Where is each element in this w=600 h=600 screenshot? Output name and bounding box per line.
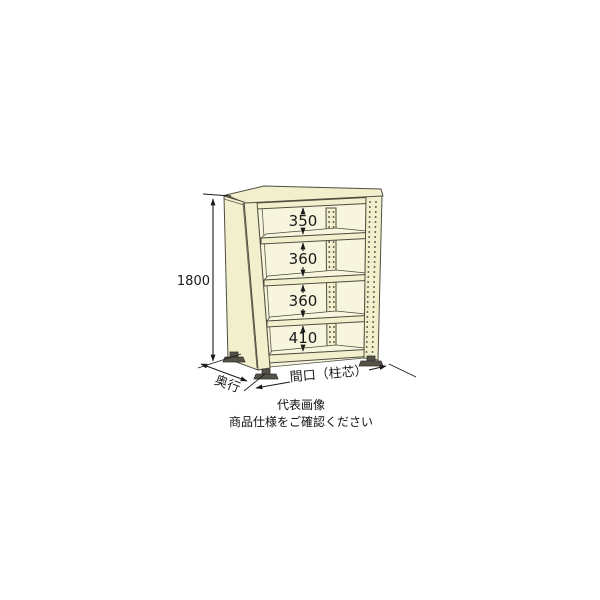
- caption-line-2: 商品仕様をご確認ください: [229, 414, 373, 429]
- product-image: 1800 350 360 360 410 奥行 間口（柱芯） 代表画像 商品仕様…: [0, 0, 600, 600]
- shelf-gap-label-2: 360: [289, 250, 318, 268]
- shelving-diagram-svg: 1800 350 360 360 410 奥行 間口（柱芯） 代表画像 商品仕様…: [0, 0, 600, 600]
- height-dimension-label: 1800: [177, 274, 210, 289]
- front-right-foot-stem: [367, 356, 375, 361]
- shelf-gap-label-3: 360: [289, 292, 318, 310]
- front-left-foot-plate: [254, 374, 278, 379]
- shelf-gap-label-1: 350: [289, 212, 318, 230]
- shelf-gap-label-4: 410: [289, 329, 318, 347]
- caption-line-1: 代表画像: [277, 398, 325, 412]
- rear-left-foot-plate: [223, 357, 245, 362]
- front-left-foot-stem: [262, 369, 270, 374]
